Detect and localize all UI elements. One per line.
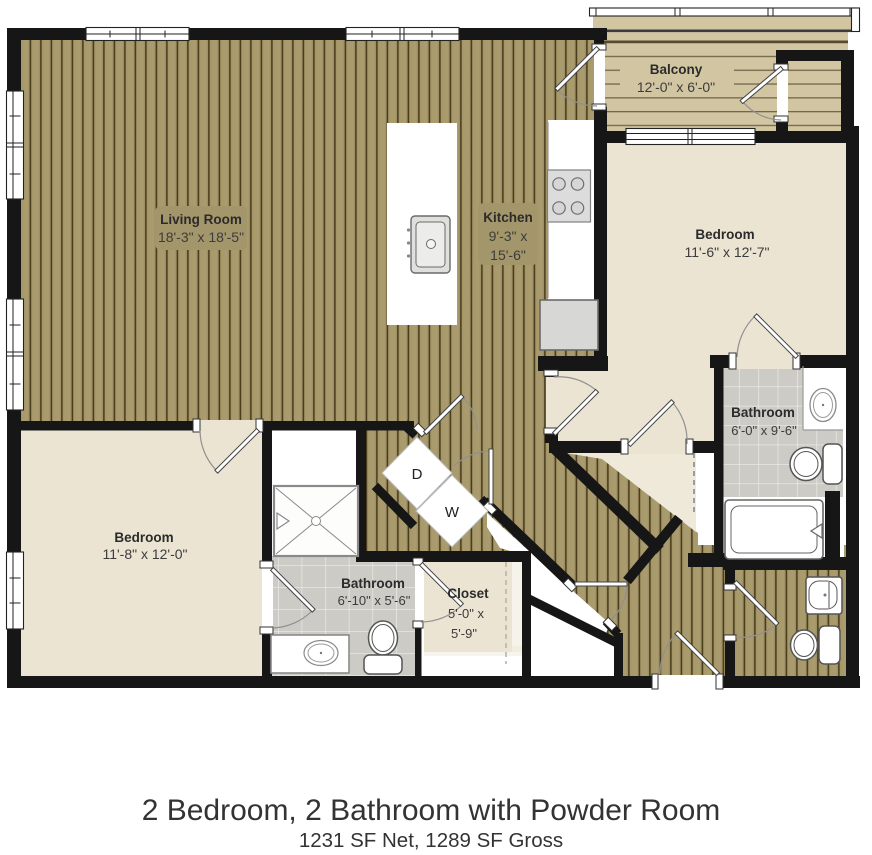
svg-text:Balcony: Balcony	[650, 62, 703, 77]
svg-text:6'-10" x 5'-6": 6'-10" x 5'-6"	[338, 593, 411, 608]
svg-text:18'-3" x 18'-5": 18'-3" x 18'-5"	[158, 229, 244, 245]
svg-text:12'-0" x 6'-0": 12'-0" x 6'-0"	[637, 79, 715, 95]
svg-text:9'-3" x: 9'-3" x	[489, 228, 528, 244]
svg-text:Closet: Closet	[447, 586, 489, 601]
svg-text:5'-0" x: 5'-0" x	[448, 606, 484, 621]
svg-text:11'-6" x 12'-7": 11'-6" x 12'-7"	[684, 244, 769, 260]
svg-text:Bedroom: Bedroom	[695, 227, 754, 242]
svg-text:Bedroom: Bedroom	[114, 530, 173, 545]
svg-text:11'-8" x 12'-0": 11'-8" x 12'-0"	[102, 546, 187, 562]
svg-text:W: W	[445, 504, 460, 521]
svg-text:Bathroom: Bathroom	[731, 405, 795, 420]
svg-text:Living Room: Living Room	[160, 212, 242, 227]
svg-text:6'-0" x 9'-6": 6'-0" x 9'-6"	[731, 423, 797, 438]
svg-text:1231 SF Net, 1289 SF Gross: 1231 SF Net, 1289 SF Gross	[299, 829, 563, 852]
svg-text:15'-6": 15'-6"	[490, 247, 526, 263]
svg-text:5'-9": 5'-9"	[451, 626, 477, 641]
svg-text:Bathroom: Bathroom	[341, 576, 405, 591]
svg-text:2 Bedroom, 2 Bathroom with Pow: 2 Bedroom, 2 Bathroom with Powder Room	[142, 794, 721, 827]
svg-text:Kitchen: Kitchen	[483, 210, 533, 225]
svg-text:D: D	[412, 466, 423, 483]
